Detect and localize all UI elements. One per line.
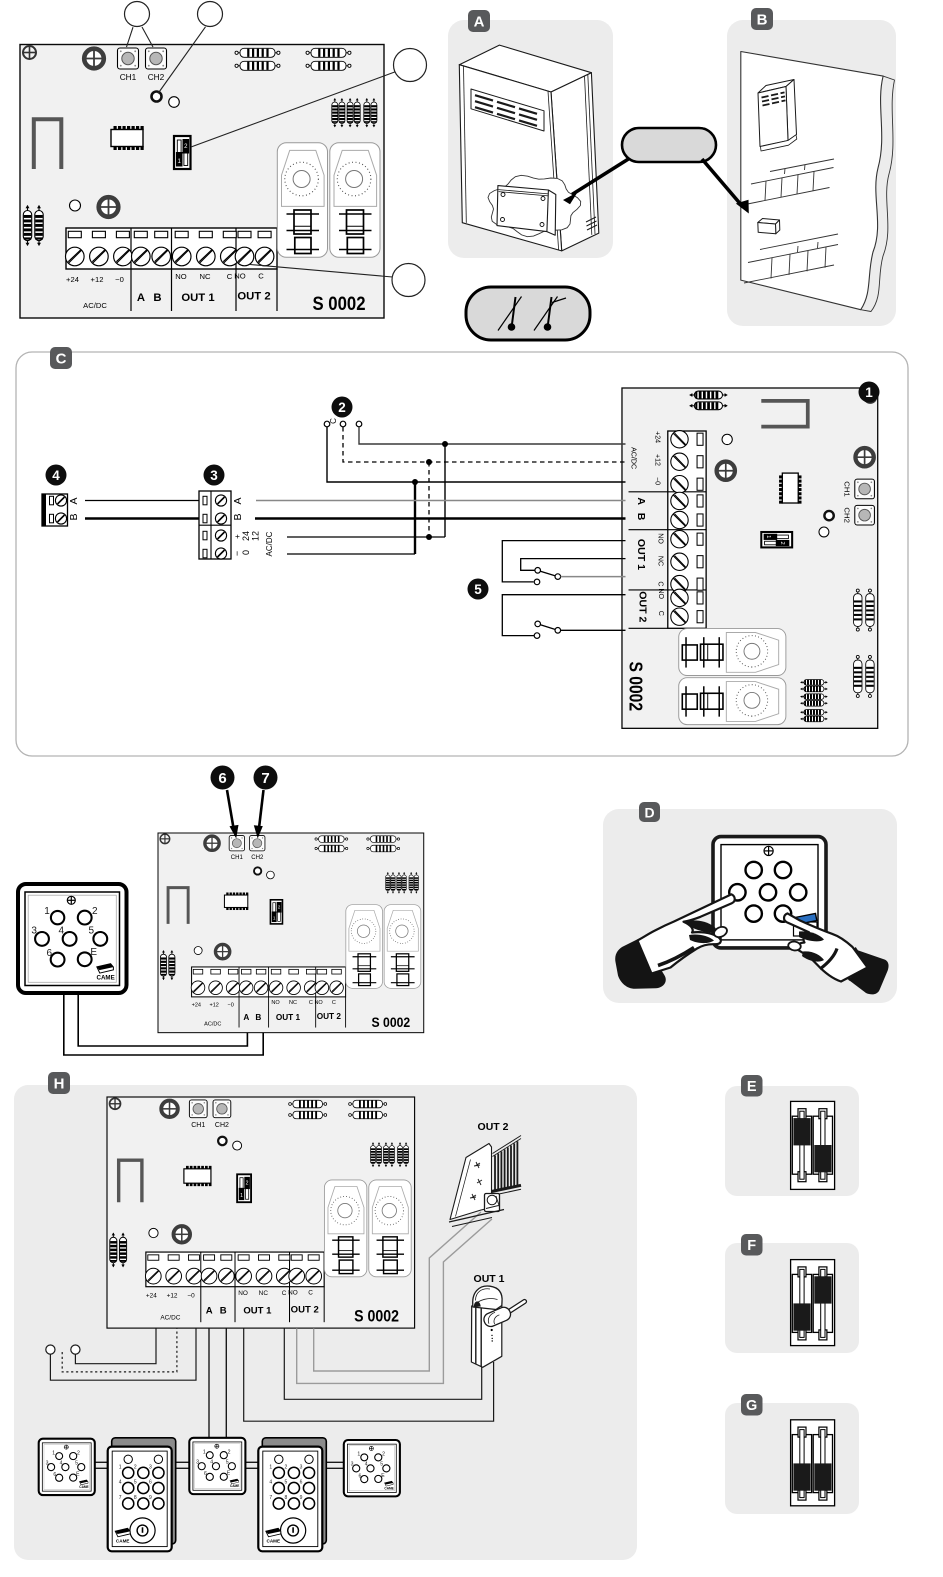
svg-text:0: 0 — [241, 550, 251, 555]
svg-text:A: A — [232, 497, 244, 504]
svg-text:4: 4 — [52, 468, 60, 483]
svg-text:AC/DC: AC/DC — [265, 531, 274, 556]
svg-text:3: 3 — [210, 468, 218, 483]
svg-text:−: − — [232, 551, 242, 556]
svg-text:7: 7 — [261, 770, 269, 787]
svg-text:6: 6 — [218, 770, 226, 787]
svg-text:B: B — [757, 12, 768, 29]
svg-text:1: 1 — [865, 385, 873, 400]
svg-text:2: 2 — [338, 400, 346, 415]
svg-text:+: + — [233, 534, 242, 539]
svg-text:D: D — [644, 805, 654, 821]
svg-text:H: H — [54, 1076, 65, 1093]
svg-text:OUT 2: OUT 2 — [478, 1121, 509, 1133]
svg-text:C: C — [56, 351, 67, 368]
svg-text:C: C — [329, 418, 338, 424]
svg-text:OUT 1: OUT 1 — [474, 1273, 505, 1285]
svg-text:24: 24 — [241, 531, 251, 541]
svg-text:B: B — [68, 513, 80, 520]
svg-text:F: F — [747, 1238, 756, 1254]
svg-text:B: B — [232, 513, 244, 520]
svg-text:A: A — [474, 14, 485, 31]
svg-text:A: A — [68, 497, 80, 504]
svg-text:5: 5 — [474, 582, 482, 597]
svg-text:G: G — [746, 1398, 757, 1414]
svg-text:12: 12 — [251, 531, 261, 541]
svg-text:E: E — [747, 1079, 757, 1095]
